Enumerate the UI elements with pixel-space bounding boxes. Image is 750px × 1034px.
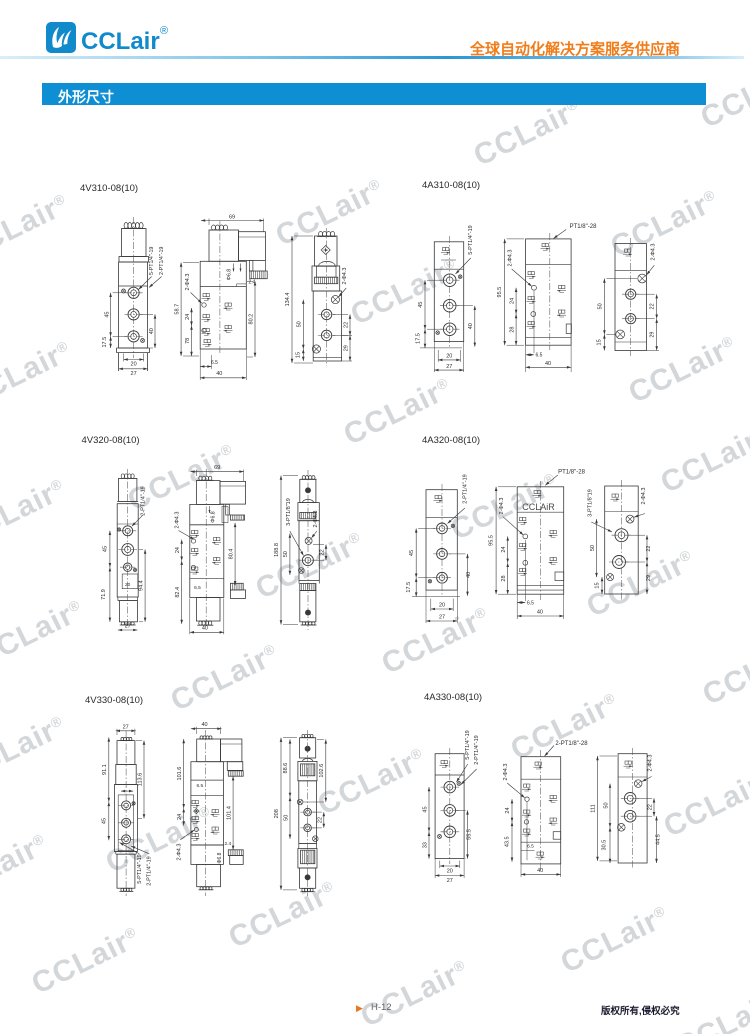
svg-text:50: 50 bbox=[283, 815, 289, 821]
svg-text:5-PT1/4"-19: 5-PT1/4"-19 bbox=[465, 730, 471, 759]
svg-text:94.4: 94.4 bbox=[138, 580, 144, 591]
svg-text:45: 45 bbox=[422, 806, 428, 812]
svg-text:4V320-08(10): 4V320-08(10) bbox=[82, 435, 140, 446]
svg-text:27: 27 bbox=[123, 724, 129, 730]
svg-text:50: 50 bbox=[297, 321, 303, 327]
svg-text:2-Φ4.3: 2-Φ4.3 bbox=[499, 498, 505, 515]
svg-text:40: 40 bbox=[149, 328, 155, 334]
svg-text:CCLAiR: CCLAiR bbox=[522, 502, 555, 512]
svg-text:2-Φ4.3: 2-Φ4.3 bbox=[503, 764, 509, 781]
svg-text:2.4: 2.4 bbox=[225, 841, 232, 847]
svg-text:40: 40 bbox=[537, 609, 543, 615]
svg-text:80.2: 80.2 bbox=[248, 314, 254, 325]
svg-text:15: 15 bbox=[595, 582, 601, 588]
svg-text:4V330-08(10): 4V330-08(10) bbox=[85, 695, 143, 706]
svg-text:28: 28 bbox=[510, 327, 516, 333]
svg-text:80.4: 80.4 bbox=[228, 549, 234, 560]
svg-text:22: 22 bbox=[319, 549, 325, 555]
svg-text:102.6: 102.6 bbox=[319, 764, 325, 778]
svg-text:17.5: 17.5 bbox=[416, 333, 422, 344]
svg-text:2-Φ4.3: 2-Φ4.3 bbox=[185, 274, 191, 291]
svg-text:2-Φ4.3: 2-Φ4.3 bbox=[176, 844, 182, 861]
svg-text:29: 29 bbox=[343, 345, 349, 351]
svg-text:55.5: 55.5 bbox=[466, 829, 472, 840]
svg-text:22: 22 bbox=[343, 322, 349, 328]
svg-text:95.5: 95.5 bbox=[489, 535, 495, 546]
svg-text:50: 50 bbox=[597, 303, 603, 309]
svg-text:88.6: 88.6 bbox=[283, 763, 289, 774]
svg-text:6.5: 6.5 bbox=[211, 360, 218, 366]
svg-text:6.5: 6.5 bbox=[194, 585, 201, 591]
svg-text:5-PT1/4"-19: 5-PT1/4"-19 bbox=[137, 854, 143, 883]
svg-text:2-Φ4.3: 2-Φ4.3 bbox=[508, 250, 514, 267]
svg-text:20: 20 bbox=[125, 582, 131, 588]
svg-text:2-Φ4.3: 2-Φ4.3 bbox=[175, 512, 181, 529]
svg-text:69: 69 bbox=[214, 465, 220, 471]
svg-text:40: 40 bbox=[468, 323, 474, 329]
svg-text:3-PT1/8"19: 3-PT1/8"19 bbox=[286, 498, 292, 526]
svg-text:50: 50 bbox=[283, 551, 289, 557]
svg-text:27: 27 bbox=[446, 364, 452, 370]
svg-text:17.5: 17.5 bbox=[406, 582, 412, 593]
svg-text:33: 33 bbox=[422, 842, 428, 848]
svg-text:29: 29 bbox=[646, 575, 652, 581]
svg-text:24: 24 bbox=[501, 547, 507, 553]
svg-text:22: 22 bbox=[317, 817, 323, 823]
svg-text:4A330-08(10): 4A330-08(10) bbox=[424, 692, 482, 703]
svg-text:24: 24 bbox=[185, 314, 191, 320]
svg-text:Φ6.8: Φ6.8 bbox=[217, 852, 223, 863]
svg-text:6.5: 6.5 bbox=[536, 353, 543, 359]
svg-text:101.6: 101.6 bbox=[177, 767, 183, 781]
svg-text:27: 27 bbox=[439, 615, 445, 621]
svg-text:17.5: 17.5 bbox=[102, 337, 108, 348]
svg-text:2-PT1/8"-28: 2-PT1/8"-28 bbox=[555, 741, 588, 747]
svg-text:40: 40 bbox=[466, 572, 472, 578]
svg-text:15: 15 bbox=[597, 339, 603, 345]
svg-text:78: 78 bbox=[185, 338, 191, 344]
svg-text:29: 29 bbox=[650, 332, 656, 338]
svg-text:22: 22 bbox=[646, 546, 652, 552]
svg-text:3-PT1/8"19: 3-PT1/8"19 bbox=[587, 489, 593, 517]
svg-text:6.5: 6.5 bbox=[527, 844, 534, 850]
svg-text:50: 50 bbox=[603, 802, 609, 808]
svg-text:45: 45 bbox=[103, 546, 109, 552]
svg-text:PT1/8"-28: PT1/8"-28 bbox=[570, 224, 597, 230]
svg-text:6.5: 6.5 bbox=[527, 601, 534, 607]
svg-text:134.4: 134.4 bbox=[285, 293, 291, 307]
svg-text:2-Φ4.3: 2-Φ4.3 bbox=[650, 244, 656, 261]
svg-text:40: 40 bbox=[537, 868, 543, 874]
svg-text:208: 208 bbox=[274, 809, 280, 818]
svg-text:2-PT1/4"-19: 2-PT1/4"-19 bbox=[159, 247, 165, 275]
svg-text:2-Φ4.3: 2-Φ4.3 bbox=[641, 488, 647, 505]
svg-text:44.5: 44.5 bbox=[655, 834, 661, 845]
svg-text:4A320-08(10): 4A320-08(10) bbox=[422, 435, 480, 446]
svg-text:4A310-08(10): 4A310-08(10) bbox=[422, 180, 480, 191]
svg-text:91.1: 91.1 bbox=[102, 764, 108, 775]
svg-text:28: 28 bbox=[501, 575, 507, 581]
svg-text:27: 27 bbox=[125, 624, 131, 630]
svg-text:95.5: 95.5 bbox=[497, 287, 503, 298]
svg-text:43.5: 43.5 bbox=[505, 836, 511, 847]
svg-text:40: 40 bbox=[545, 361, 551, 367]
svg-text:45: 45 bbox=[409, 550, 415, 556]
svg-text:20: 20 bbox=[447, 868, 453, 874]
svg-text:45: 45 bbox=[104, 312, 110, 318]
svg-text:24: 24 bbox=[175, 547, 181, 553]
svg-text:45: 45 bbox=[418, 302, 424, 308]
svg-text:2-PT1/4"-19: 2-PT1/4"-19 bbox=[147, 856, 153, 885]
svg-text:20: 20 bbox=[439, 603, 445, 609]
svg-text:6.5: 6.5 bbox=[196, 783, 203, 789]
svg-text:2-Φ4.3: 2-Φ4.3 bbox=[648, 755, 654, 772]
svg-text:58.7: 58.7 bbox=[174, 304, 180, 315]
svg-text:2-Φ4.3: 2-Φ4.3 bbox=[342, 268, 348, 285]
svg-text:2-PT1/4"-19: 2-PT1/4"-19 bbox=[140, 486, 146, 515]
svg-text:Φ6.8: Φ6.8 bbox=[211, 511, 217, 522]
svg-text:2-PT1/4"-19: 2-PT1/4"-19 bbox=[474, 735, 480, 764]
svg-text:82.4: 82.4 bbox=[175, 587, 181, 598]
svg-text:113.6: 113.6 bbox=[137, 773, 143, 786]
svg-text:24: 24 bbox=[510, 298, 516, 304]
svg-text:30.5: 30.5 bbox=[602, 840, 608, 851]
svg-text:Φ6.8: Φ6.8 bbox=[227, 269, 233, 280]
svg-text:5-PT1/4"-19: 5-PT1/4"-19 bbox=[149, 247, 155, 275]
svg-text:20: 20 bbox=[446, 354, 452, 360]
svg-text:40: 40 bbox=[202, 626, 208, 632]
svg-text:27: 27 bbox=[131, 371, 137, 377]
svg-text:PT1/8"-28: PT1/8"-28 bbox=[558, 470, 585, 476]
svg-text:24: 24 bbox=[177, 814, 183, 820]
svg-text:2-Φ4.3: 2-Φ4.3 bbox=[313, 511, 319, 528]
svg-text:5-PT1/4"-19: 5-PT1/4"-19 bbox=[468, 225, 474, 254]
svg-text:27: 27 bbox=[447, 878, 453, 884]
svg-text:188.8: 188.8 bbox=[274, 543, 280, 557]
svg-text:4V310-08(10): 4V310-08(10) bbox=[80, 183, 138, 194]
svg-text:101.4: 101.4 bbox=[226, 806, 232, 820]
svg-text:50: 50 bbox=[590, 545, 596, 551]
svg-text:20: 20 bbox=[131, 362, 137, 368]
svg-text:111: 111 bbox=[591, 804, 597, 812]
svg-text:22: 22 bbox=[647, 804, 653, 810]
svg-text:69: 69 bbox=[229, 215, 235, 221]
svg-text:24: 24 bbox=[505, 807, 511, 813]
svg-text:2-PT1/4"-19: 2-PT1/4"-19 bbox=[462, 474, 468, 503]
svg-text:45: 45 bbox=[102, 818, 108, 824]
svg-text:22: 22 bbox=[650, 303, 656, 309]
svg-text:71.9: 71.9 bbox=[101, 589, 107, 600]
svg-text:15: 15 bbox=[296, 352, 302, 358]
svg-text:40: 40 bbox=[201, 722, 207, 728]
svg-text:40: 40 bbox=[216, 371, 222, 377]
